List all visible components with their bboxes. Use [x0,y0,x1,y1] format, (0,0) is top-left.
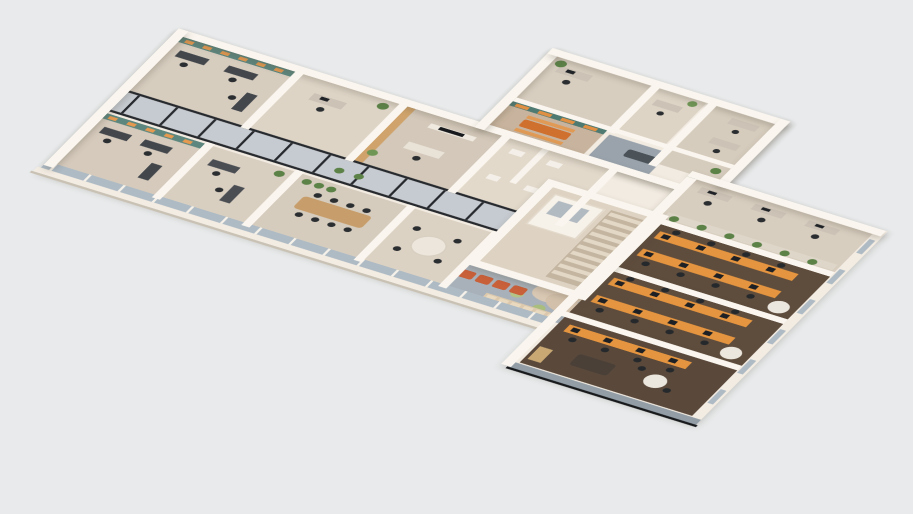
scene-background [0,0,913,514]
building-floor-plan [0,0,913,442]
